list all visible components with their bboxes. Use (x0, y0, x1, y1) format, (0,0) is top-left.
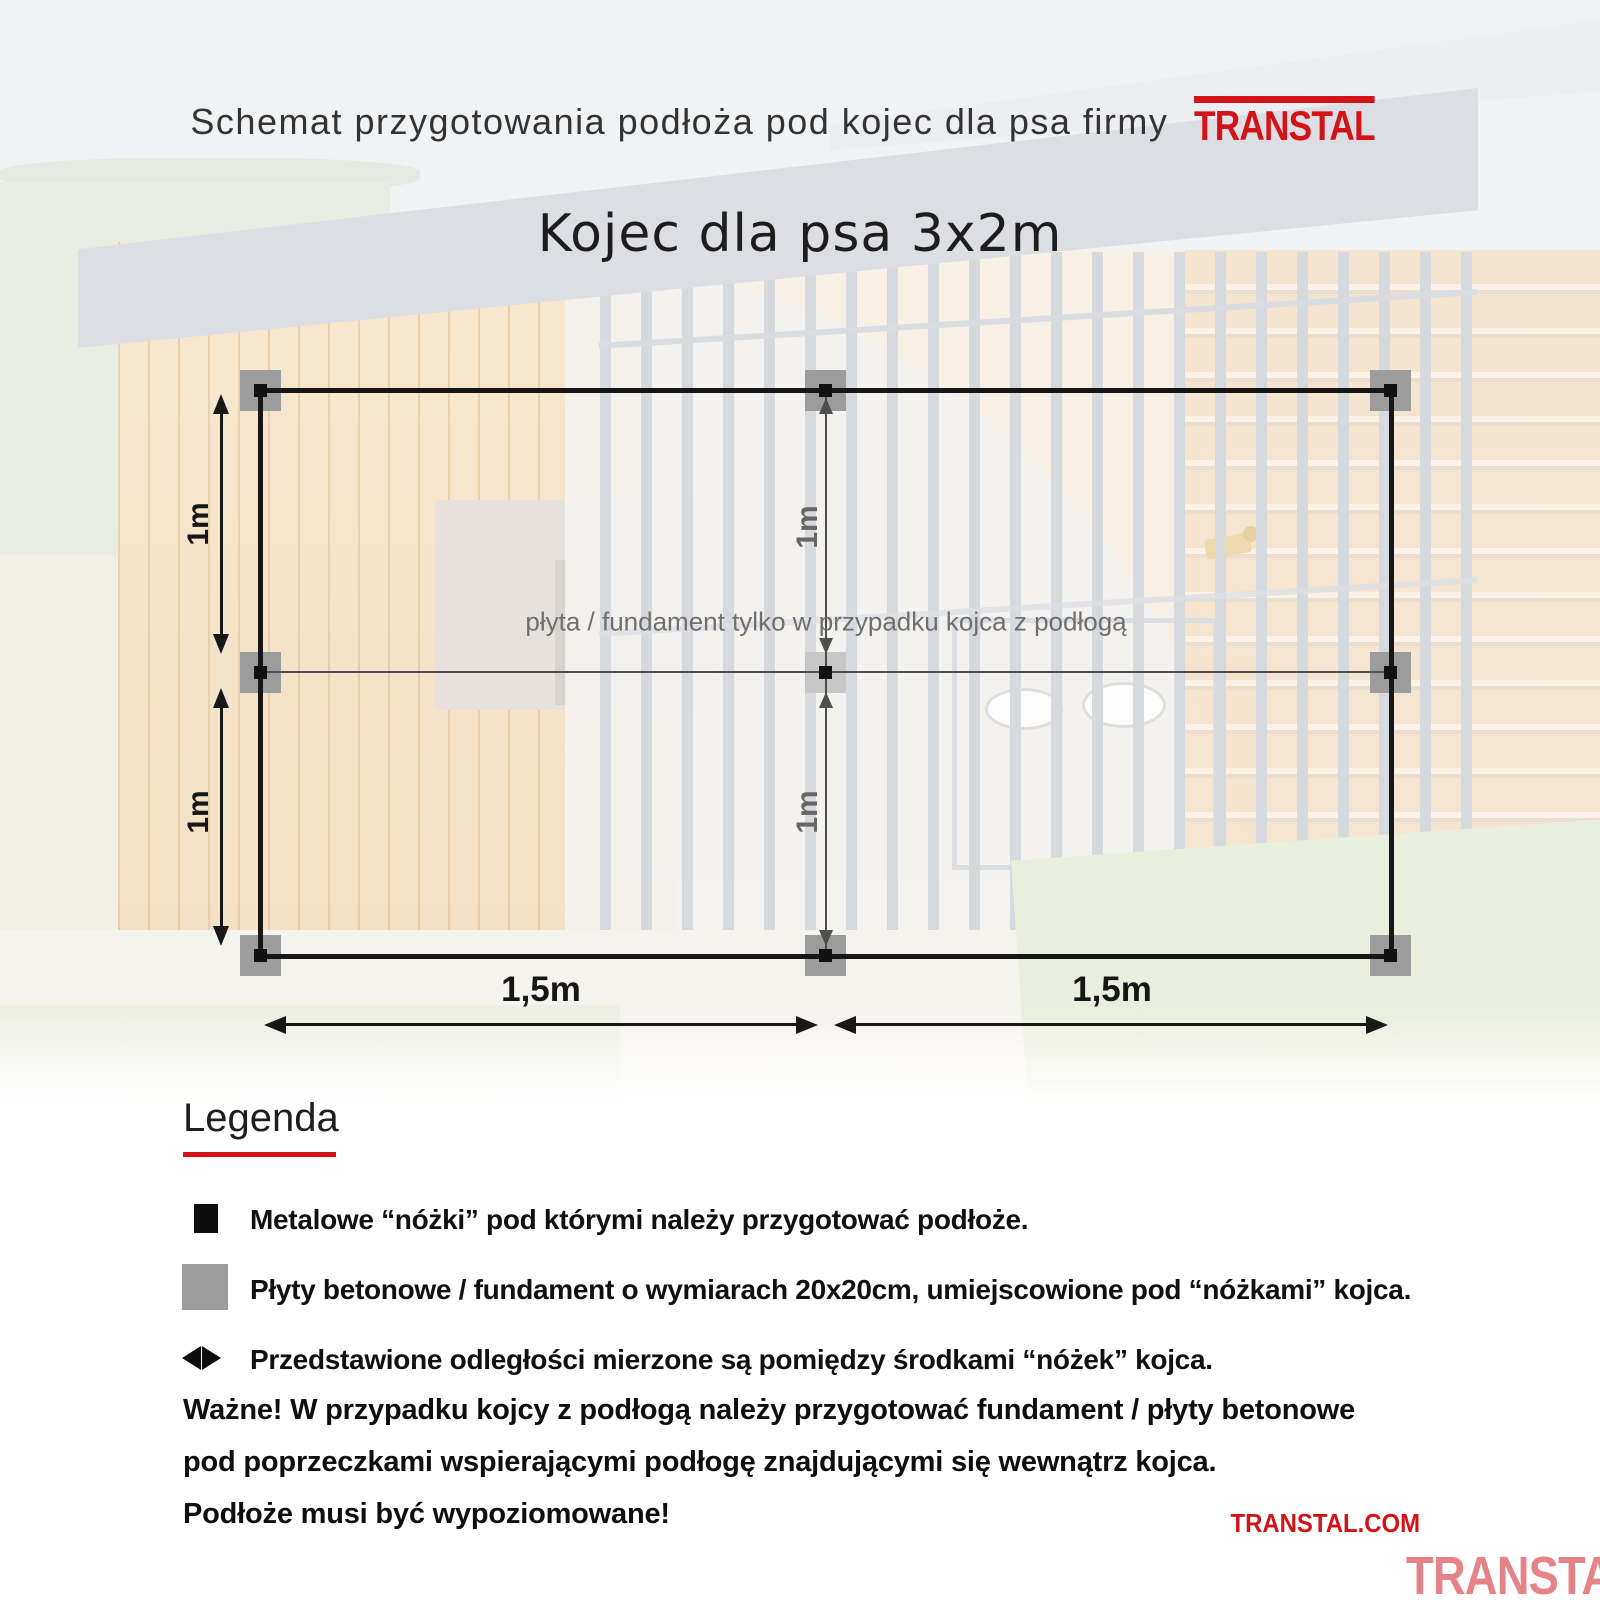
gray-square-icon (182, 1264, 228, 1310)
website-url: TRANSTAL.COM (1230, 1508, 1420, 1539)
legend-heading: Legenda (183, 1096, 339, 1141)
legend-section: Legenda Metalowe “nóżki” pod którymi nal… (0, 0, 1600, 1600)
legend-underline (183, 1152, 336, 1157)
double-arrow-icon (182, 1346, 221, 1370)
logo-wordmark: TranStal (1406, 1549, 1600, 1600)
arrow-right-icon (202, 1346, 221, 1370)
arrow-left-icon (182, 1346, 201, 1370)
important-label: Ważne! (183, 1394, 282, 1426)
legend-item: Płyty betonowe / fundament o wymiarach 2… (250, 1274, 1411, 1306)
legend-item: Przedstawione odległości mierzone są pom… (250, 1344, 1213, 1376)
important-line-1: Ważne! W przypadku kojcy z podłogą należ… (183, 1384, 1463, 1436)
infographic-poster: Schemat przygotowania podłoża pod kojec … (0, 0, 1600, 1600)
important-line-2: pod poprzeczkami wspierającymi podłogę z… (183, 1436, 1463, 1488)
legend-item: Metalowe “nóżki” pod którymi należy przy… (250, 1204, 1028, 1236)
transtal-corner-logo: TranStal (1406, 1549, 1600, 1600)
black-square-icon (194, 1204, 218, 1233)
